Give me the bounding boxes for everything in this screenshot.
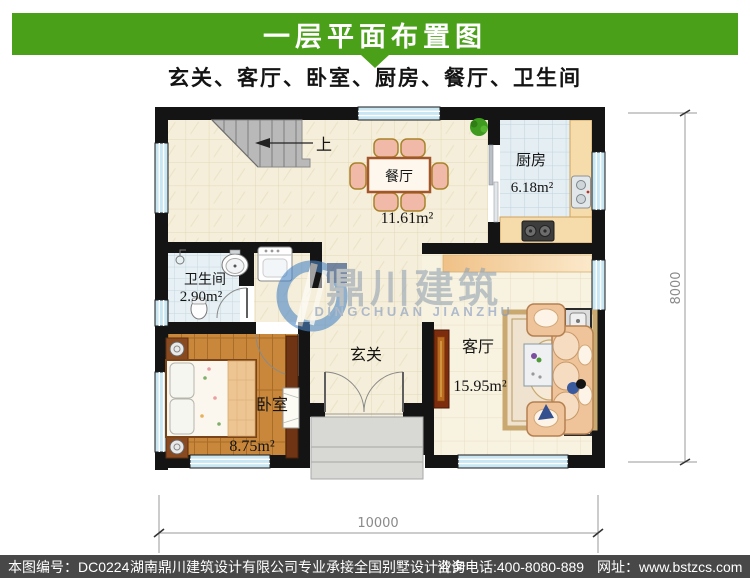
dining-chair xyxy=(432,163,448,189)
kitchen-label: 厨房 xyxy=(516,152,546,169)
window-right-kitchen xyxy=(592,152,605,210)
bathroom-area-label: 2.90m² xyxy=(180,289,223,305)
dimension-width: 10000 xyxy=(154,495,603,553)
entry-label: 玄关 xyxy=(350,346,382,364)
coffee-table xyxy=(524,344,552,386)
dining-chair xyxy=(374,193,398,211)
dining-chair xyxy=(350,163,366,189)
kitchen-sliding-door xyxy=(489,145,498,222)
footer-company: 湖南鼎川建筑设计有限公司专业承接全国别墅设计业务 xyxy=(130,557,466,577)
window-left-dining xyxy=(155,143,168,213)
bedroom-label: 卧室 xyxy=(256,396,288,414)
dimension-height-label: 8000 xyxy=(669,271,684,304)
window-bottom-living xyxy=(458,455,568,468)
entrance-steps xyxy=(311,417,423,479)
footer-bar: 本图编号：DC0224 湖南鼎川建筑设计有限公司专业承接全国别墅设计业务 咨询电… xyxy=(0,555,750,578)
dining-chair xyxy=(401,139,425,157)
page: 一层平面布置图 玄关、客厅、卧室、厨房、餐厅、卫生间 xyxy=(0,0,750,578)
bathroom-label: 卫生间 xyxy=(184,272,226,288)
living-label: 客厅 xyxy=(462,338,494,356)
tv-cabinet xyxy=(434,330,449,408)
watermark-en-text: DINGCHUAN JIANZHU xyxy=(315,304,514,319)
stove-icon xyxy=(522,221,554,241)
dining-chair xyxy=(374,139,398,157)
dimension-width-label: 10000 xyxy=(357,516,398,531)
bedroom-area-label: 8.75m² xyxy=(229,438,274,455)
window-top-dining xyxy=(358,107,440,120)
plant-icon xyxy=(470,118,488,136)
dining-room-label: 餐厅 xyxy=(385,169,413,185)
footer-drawing-number: 本图编号：DC0224 xyxy=(8,557,129,577)
dining-chair xyxy=(401,193,425,211)
kitchen-sink-icon xyxy=(572,176,591,208)
nightstand xyxy=(166,436,188,458)
window-left-bathroom xyxy=(155,300,168,326)
dining-area-label: 11.61m² xyxy=(381,210,434,227)
footer-phone: 咨询电话:400-8080-889 xyxy=(437,557,584,577)
window-right-living xyxy=(592,260,605,310)
stair-up-label: 上 xyxy=(316,136,332,154)
living-area-label: 15.95m² xyxy=(453,378,506,395)
window-bottom-bedroom xyxy=(190,455,270,468)
floor-plan: 上 xyxy=(0,0,750,578)
footer-website: 网址：www.bstzcs.com xyxy=(597,557,742,577)
dimension-height: 8000 xyxy=(628,110,697,465)
kitchen-area-label: 6.18m² xyxy=(511,180,554,196)
nightstand xyxy=(166,338,188,360)
bed xyxy=(166,360,256,437)
